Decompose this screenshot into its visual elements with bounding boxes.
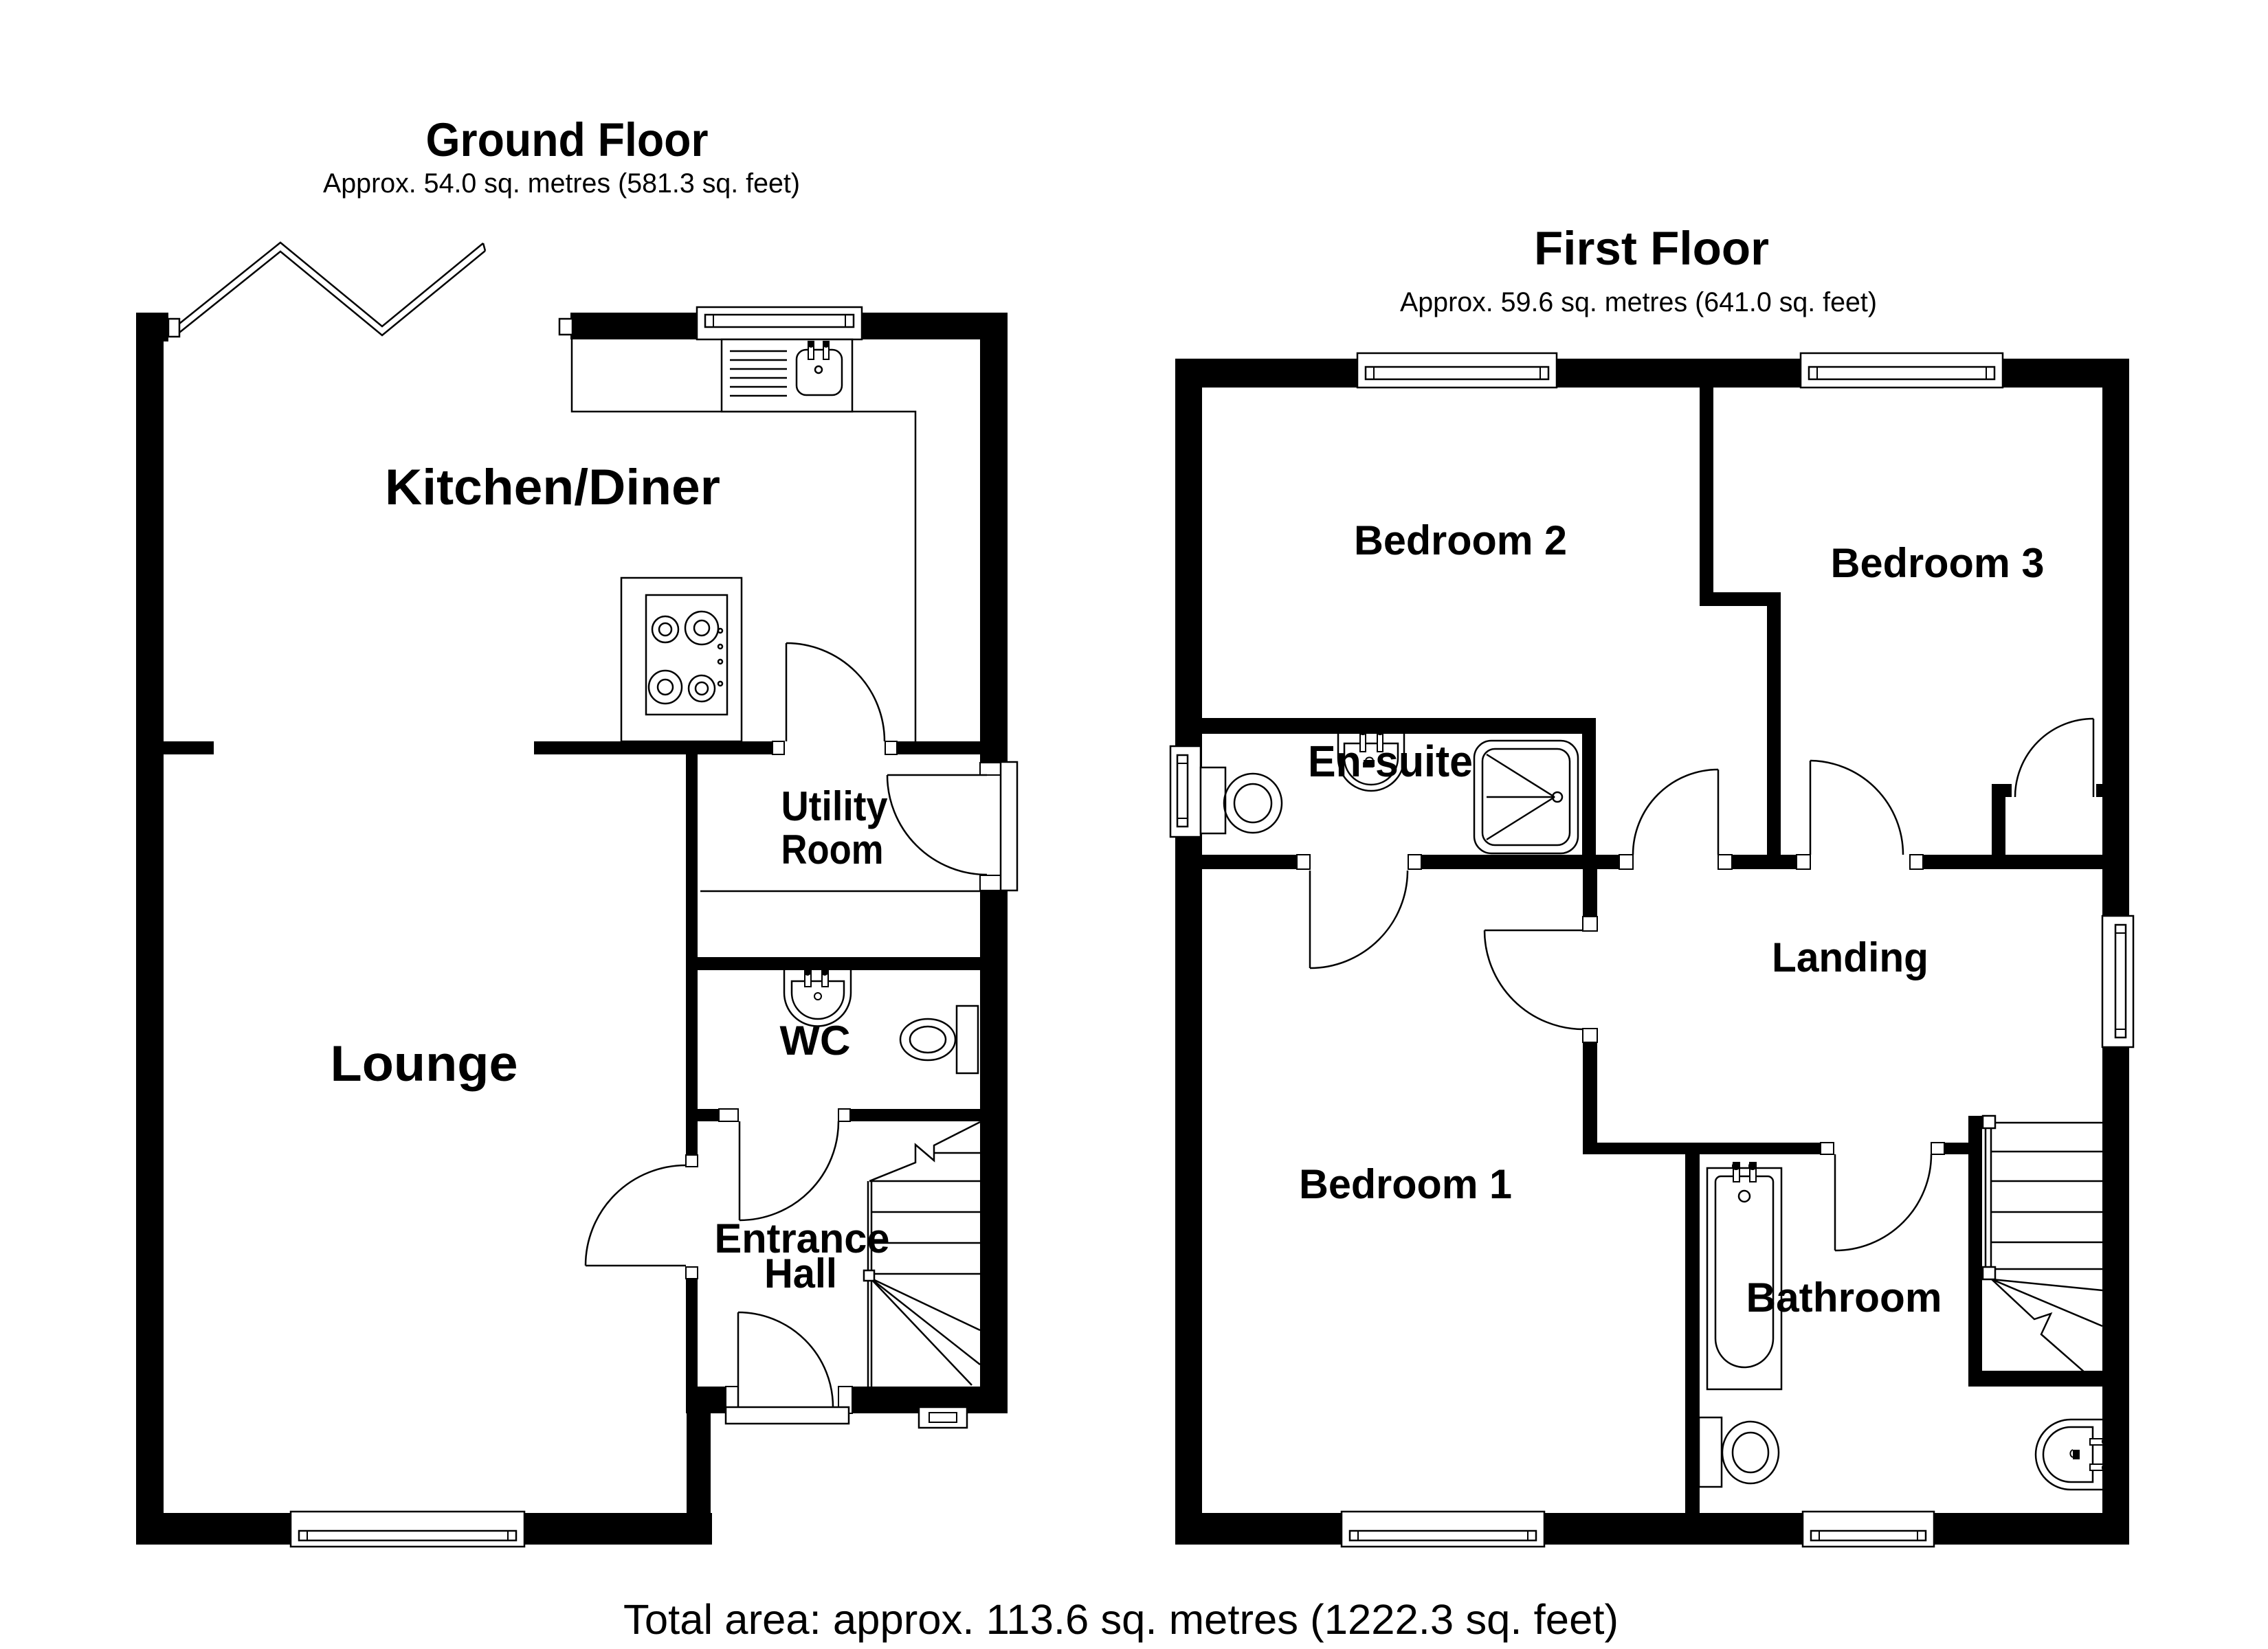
svg-text:Approx. 59.6 sq. metres (641.0: Approx. 59.6 sq. metres (641.0 sq. feet) bbox=[1400, 287, 1877, 317]
svg-text:Bedroom 2: Bedroom 2 bbox=[1354, 517, 1567, 563]
svg-text:Utility: Utility bbox=[781, 783, 889, 829]
svg-text:Approx. 54.0 sq. metres (581.3: Approx. 54.0 sq. metres (581.3 sq. feet) bbox=[323, 168, 800, 199]
svg-text:WC: WC bbox=[780, 1018, 851, 1064]
svg-text:Bedroom 3: Bedroom 3 bbox=[1831, 540, 2045, 586]
svg-text:Landing: Landing bbox=[1772, 934, 1928, 980]
svg-text:Total area: approx. 113.6 sq.: Total area: approx. 113.6 sq. metres (12… bbox=[623, 1596, 1619, 1643]
svg-text:En-suite: En-suite bbox=[1308, 737, 1473, 786]
svg-text:Lounge: Lounge bbox=[331, 1036, 518, 1092]
svg-text:First Floor: First Floor bbox=[1534, 222, 1769, 275]
svg-text:Ground Floor: Ground Floor bbox=[426, 113, 709, 166]
svg-text:Bedroom 1: Bedroom 1 bbox=[1299, 1161, 1512, 1207]
svg-text:Hall: Hall bbox=[764, 1250, 837, 1297]
svg-text:Bathroom: Bathroom bbox=[1746, 1275, 1942, 1321]
svg-text:Room: Room bbox=[781, 827, 884, 873]
svg-text:Kitchen/Diner: Kitchen/Diner bbox=[385, 460, 720, 515]
